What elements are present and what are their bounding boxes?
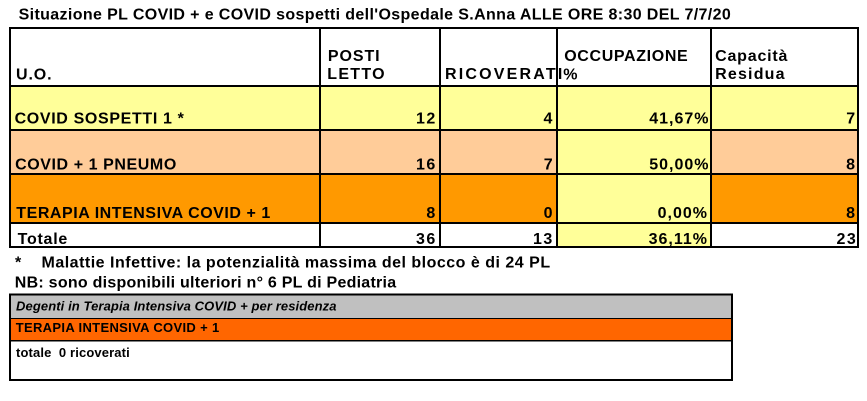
svg-text:LETTO: LETTO bbox=[327, 66, 386, 83]
svg-text:U.O.: U.O. bbox=[16, 67, 53, 84]
svg-text:16: 16 bbox=[416, 156, 437, 173]
svg-text:0: 0 bbox=[544, 205, 553, 222]
svg-text:TERAPIA INTENSIVA COVID + 1: TERAPIA INTENSIVA COVID + 1 bbox=[16, 205, 270, 222]
svg-text:totale 0 ricoverati: totale 0 ricoverati bbox=[16, 345, 130, 360]
svg-text:23: 23 bbox=[837, 231, 858, 248]
svg-text:NB: sono disponibili ulteriori: NB: sono disponibili ulteriori n° 6 PL d… bbox=[15, 275, 397, 292]
svg-text:8: 8 bbox=[846, 156, 855, 173]
svg-text:0,00%: 0,00% bbox=[658, 205, 708, 222]
svg-text:COVID + 1 PNEUMO: COVID + 1 PNEUMO bbox=[15, 156, 177, 173]
svg-text:36: 36 bbox=[416, 231, 437, 248]
svg-text:4: 4 bbox=[543, 110, 552, 127]
svg-text:Situazione PL COVID + e COVID: Situazione PL COVID + e COVID sospetti d… bbox=[19, 6, 732, 23]
svg-text:8: 8 bbox=[426, 205, 435, 222]
svg-text:13: 13 bbox=[533, 231, 554, 248]
svg-text:8: 8 bbox=[846, 205, 855, 222]
svg-text:* Malattie Infettive: la po: * Malattie Infettive: la potenzialità ma… bbox=[15, 255, 551, 272]
svg-text:RICOVERATI: RICOVERATI bbox=[445, 66, 564, 83]
svg-text:7: 7 bbox=[544, 156, 553, 173]
svg-text:Totale: Totale bbox=[18, 231, 69, 248]
svg-text:12: 12 bbox=[416, 110, 437, 127]
svg-text:50,00%: 50,00% bbox=[649, 156, 709, 173]
svg-text:POSTI: POSTI bbox=[328, 48, 381, 65]
svg-text:COVID SOSPETTI 1 *: COVID SOSPETTI 1 * bbox=[15, 110, 185, 127]
svg-text:Degenti in Terapia Intensiva C: Degenti in Terapia Intensiva COVID + per… bbox=[16, 299, 337, 314]
svg-text:7: 7 bbox=[846, 110, 855, 127]
svg-text:OCCUPAZIONE: OCCUPAZIONE bbox=[564, 48, 688, 65]
svg-text:TERAPIA INTENSIVA COVID + 1: TERAPIA INTENSIVA COVID + 1 bbox=[16, 320, 220, 335]
svg-text:%: % bbox=[563, 67, 577, 84]
svg-text:36,11%: 36,11% bbox=[649, 231, 708, 248]
svg-text:41,67%: 41,67% bbox=[649, 110, 709, 127]
svg-text:Capacità: Capacità bbox=[715, 48, 788, 65]
svg-text:Residua: Residua bbox=[715, 66, 786, 83]
